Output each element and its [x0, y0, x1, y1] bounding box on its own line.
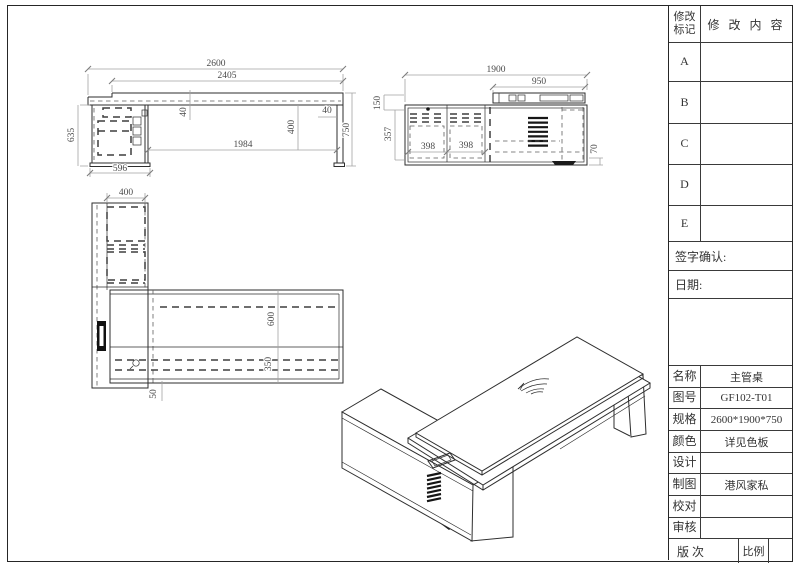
- dim-front-cabinet-width: 596: [113, 164, 128, 174]
- revision-header-row: 修改 标记 修 改 内 容: [669, 6, 792, 43]
- dim-top-inner-depth: 350: [264, 357, 274, 372]
- name-value: 主管桌: [701, 366, 792, 387]
- revision-row-c: C: [669, 124, 792, 165]
- design-value: [701, 453, 792, 473]
- spec-value: 2600*1900*750: [701, 409, 792, 430]
- blank-row: [669, 299, 792, 366]
- revision-content-header: 修 改 内 容: [701, 6, 792, 42]
- dim-side-drawer-height: 357: [384, 127, 394, 142]
- drawing-no-row: 图号 GF102-T01: [669, 388, 792, 409]
- dim-side-overall-depth: 1900: [487, 65, 506, 75]
- dim-front-apron-drop: 400: [287, 120, 297, 135]
- draft-row: 制图 港风家私: [669, 474, 792, 496]
- drawing-sheet: 2600 2405 40 400 40 750 1984 635 596: [0, 0, 800, 567]
- audit-value: [701, 518, 792, 538]
- revision-row-d: D: [669, 165, 792, 206]
- drawer-handle-plan: [97, 321, 106, 351]
- audit-row: 审核: [669, 518, 792, 539]
- revision-row-b: B: [669, 82, 792, 124]
- dim-side-top-depth: 950: [532, 77, 547, 87]
- dim-front-cabinet-height: 635: [67, 128, 77, 143]
- draft-value: 港风家私: [701, 474, 792, 495]
- proof-value: [701, 496, 792, 517]
- revision-row-e: E: [669, 206, 792, 242]
- dim-side-top-offset: 150: [373, 96, 383, 111]
- dim-front-clear-span: 1984: [234, 140, 253, 150]
- revision-row-a: A: [669, 43, 792, 82]
- dim-side-drawer-w1: 398: [421, 142, 436, 152]
- name-row: 名称 主管桌: [669, 366, 792, 388]
- side-view: 1900 950 150 357 398 398 70: [373, 65, 603, 165]
- dim-front-height: 750: [342, 123, 352, 138]
- dim-top-desk-depth: 600: [267, 312, 277, 327]
- front-view: 2600 2405 40 400 40 750 1984 635 596: [67, 59, 356, 177]
- dim-top-edge-gap: 50: [149, 389, 159, 399]
- dim-front-top-width: 2405: [218, 71, 237, 81]
- color-row: 颜色 详见色板: [669, 431, 792, 453]
- dim-front-top-thickness: 40: [179, 107, 189, 117]
- design-row: 设计: [669, 453, 792, 474]
- proof-row: 校对: [669, 496, 792, 518]
- dim-top-cabinet-depth: 400: [119, 188, 134, 198]
- signature-row: 签字确认:: [669, 242, 792, 271]
- revision-mark-header: 修改 标记: [669, 6, 701, 42]
- dim-side-drawer-w2: 398: [459, 141, 474, 151]
- version-label: 版次: [669, 539, 739, 563]
- scale-value: [769, 539, 792, 563]
- drawing-no-value: GF102-T01: [701, 388, 792, 408]
- title-block-panel: 修改 标记 修 改 内 容 A B C D E 签字确认: 日期:: [668, 6, 792, 560]
- vent-grille-side: [528, 118, 548, 146]
- dim-side-base-height: 70: [590, 144, 600, 154]
- dim-front-leg-thickness: 40: [322, 106, 332, 116]
- dim-front-overall-width: 2600: [207, 59, 226, 69]
- top-view: 400 600 350 50: [92, 188, 343, 401]
- isometric-view: [342, 337, 650, 541]
- side-foot: [552, 161, 576, 165]
- spec-row: 规格 2600*1900*750: [669, 409, 792, 431]
- scale-label: 比例: [739, 539, 769, 563]
- color-value: 详见色板: [701, 431, 792, 452]
- date-row: 日期:: [669, 271, 792, 299]
- version-scale-row: 版次 比例: [669, 539, 792, 563]
